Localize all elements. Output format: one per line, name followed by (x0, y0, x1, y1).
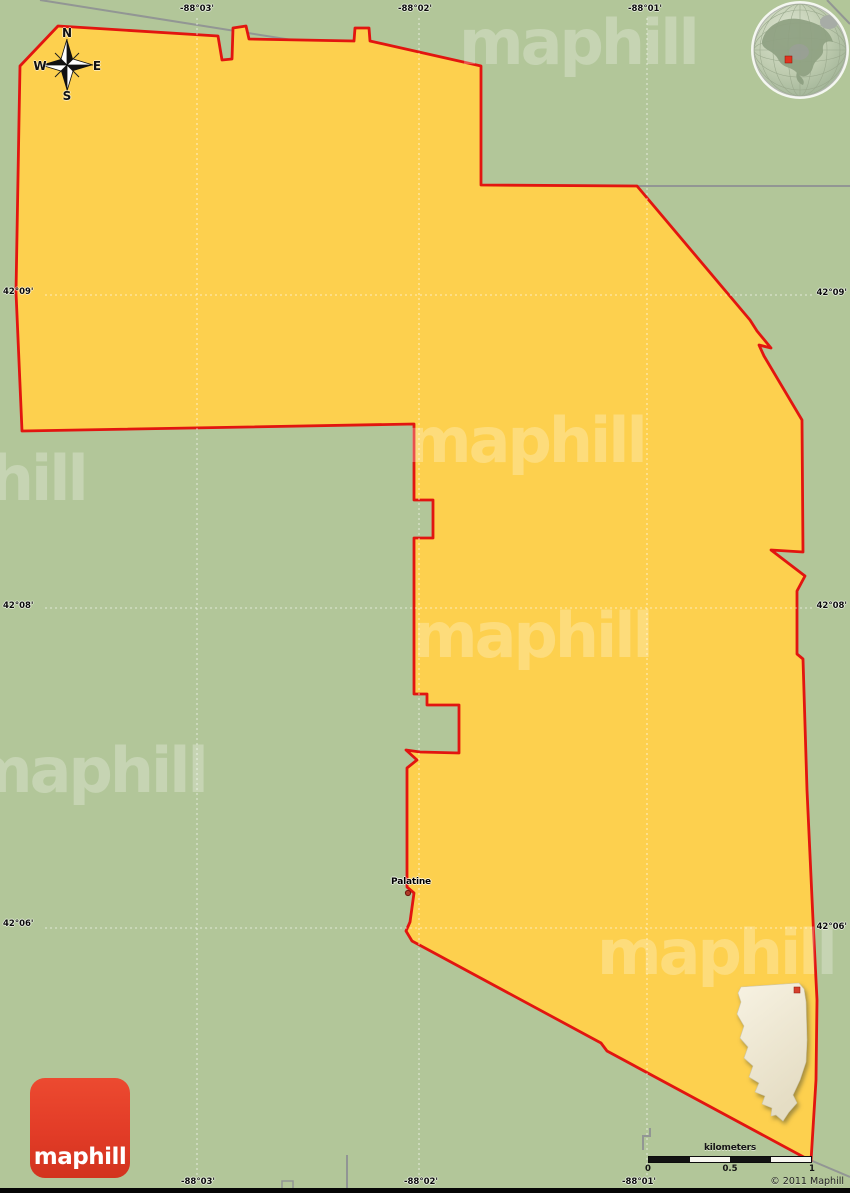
globe-location-marker-icon (785, 56, 792, 63)
palatine-town-dot (405, 890, 410, 895)
scale-bar-segment (730, 1157, 771, 1162)
maphill-logo-text: maphill (34, 1146, 126, 1178)
grid-label-left-2: 42°06' (3, 919, 34, 929)
grid-label-right-0: 42°09' (816, 288, 847, 298)
globe-locator-icon (753, 3, 848, 98)
scale-tick-0: 0 (645, 1164, 651, 1174)
scale-tick-0-5: 0.5 (722, 1164, 737, 1174)
copyright-notice: © 2011 Maphill (770, 1176, 844, 1187)
maphill-logo[interactable]: maphill (30, 1078, 130, 1178)
inset-location-marker-icon (794, 987, 800, 993)
map-canvas (0, 0, 850, 1193)
grid-label-top-0: -88°03' (180, 4, 214, 14)
grid-label-top-1: -88°02' (398, 4, 432, 14)
compass-south-label: S (63, 89, 72, 103)
bottom-black-bar (0, 1188, 850, 1193)
map-page: maphill maphill maphill maphill maphill … (0, 0, 850, 1193)
grid-label-top-2: -88°01' (628, 4, 662, 14)
scale-bar-segment (690, 1157, 731, 1162)
scale-bar: kilometers 0 0.5 1 (648, 1143, 812, 1175)
grid-label-right-2: 42°06' (816, 922, 847, 932)
grid-label-right-1: 42°08' (816, 601, 847, 611)
compass-east-label: E (93, 59, 101, 73)
grid-label-bottom-0: -88°03' (181, 1177, 215, 1187)
scale-bar-segment (771, 1157, 812, 1162)
grid-label-left-1: 42°08' (3, 601, 34, 611)
scale-bar-segment (649, 1157, 690, 1162)
scale-tick-1: 1 (809, 1164, 815, 1174)
compass-west-label: W (33, 59, 46, 73)
palatine-place-label: Palatine (391, 877, 431, 887)
grid-label-bottom-2: -88°01' (622, 1177, 656, 1187)
grid-label-bottom-1: -88°02' (404, 1177, 438, 1187)
scale-bar-segments (648, 1156, 812, 1163)
grid-label-left-0: 42°09' (3, 287, 34, 297)
compass-north-label: N (62, 26, 72, 40)
scale-bar-unit-label: kilometers (648, 1143, 812, 1153)
